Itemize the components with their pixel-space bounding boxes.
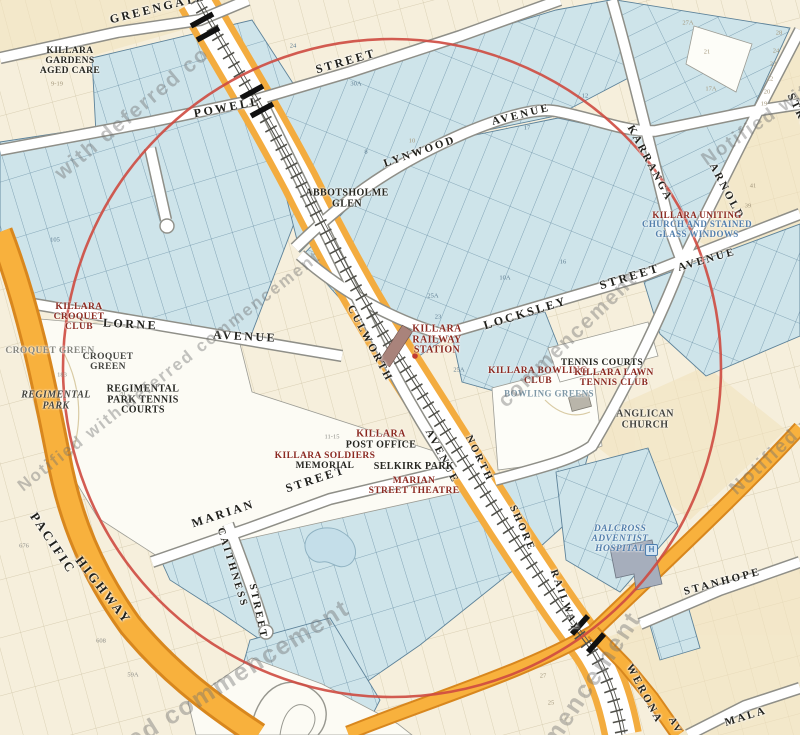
cul-de-sac — [259, 625, 273, 639]
map[interactable]: GREENGATESTREETPOWELLLYNWOODAVENUEKARRAN… — [0, 0, 800, 735]
hospital-icon: H — [645, 544, 658, 556]
cul-de-sac — [160, 219, 174, 233]
station-marker-dot — [412, 353, 418, 359]
map-canvas — [0, 0, 800, 735]
